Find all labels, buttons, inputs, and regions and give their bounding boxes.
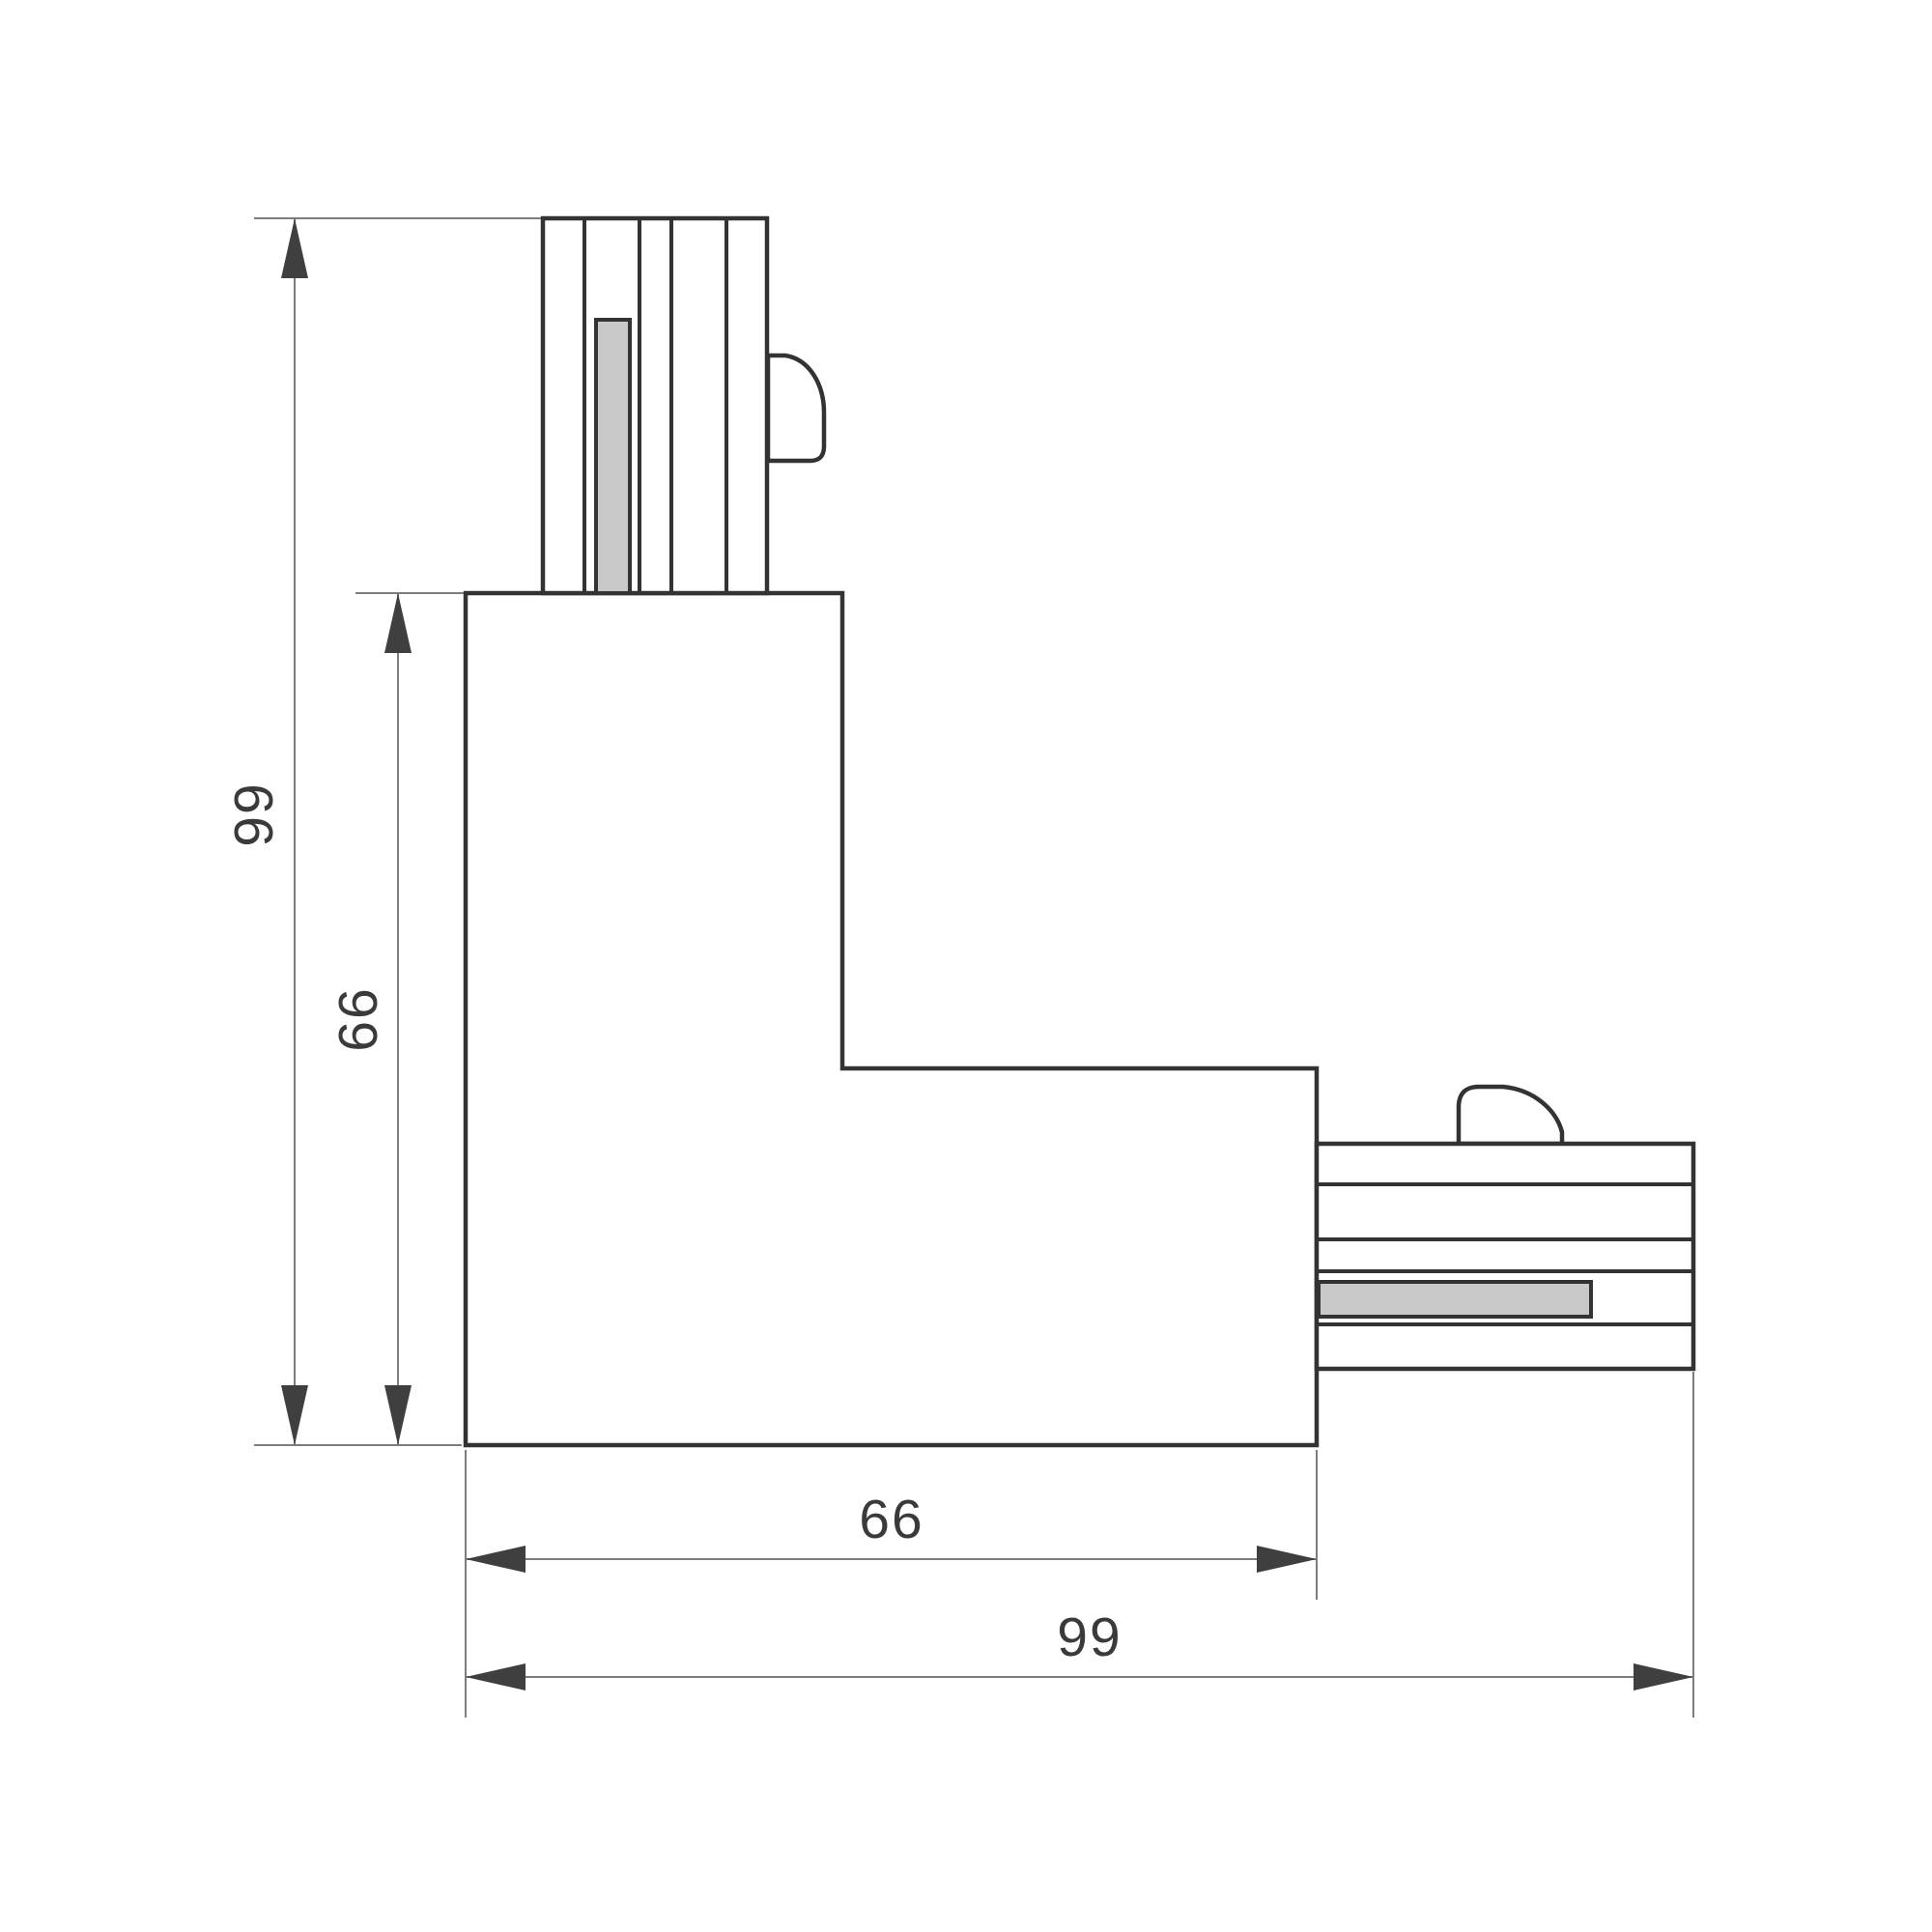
- arrowhead-right-icon: [1634, 1663, 1693, 1690]
- arrowhead-up-icon: [281, 218, 308, 278]
- arrowhead-left-icon: [466, 1663, 526, 1690]
- track-connector-drawing: 99 66 66 99: [0, 0, 1932, 1932]
- top-track-adapter: [543, 218, 824, 593]
- side-adapter-outline: [1317, 1144, 1693, 1369]
- dim-label-inner-width: 66: [859, 1489, 923, 1550]
- dimension-drawing-canvas: 99 66 66 99: [0, 0, 1932, 1932]
- dim-overall-width: 99: [466, 1606, 1693, 1690]
- arrowhead-up-icon: [384, 593, 412, 653]
- body-outline: [466, 593, 1317, 1445]
- arrowhead-down-icon: [384, 1385, 412, 1445]
- l-connector-body: [466, 593, 1317, 1445]
- dim-label-overall-width: 99: [1057, 1606, 1122, 1668]
- dim-overall-height: 99: [223, 218, 308, 1445]
- top-adapter-outline: [543, 218, 767, 593]
- dim-label-inner-height: 66: [327, 986, 389, 1051]
- arrowhead-down-icon: [281, 1385, 308, 1445]
- top-contact-strip: [596, 320, 630, 593]
- arrowhead-left-icon: [466, 1546, 526, 1573]
- side-latch-tab: [1459, 1087, 1562, 1144]
- side-track-adapter: [1317, 1087, 1693, 1369]
- dim-label-overall-height: 99: [223, 781, 285, 846]
- top-latch-tab: [768, 355, 824, 461]
- dim-inner-width: 66: [466, 1489, 1317, 1573]
- arrowhead-right-icon: [1257, 1546, 1317, 1573]
- dim-inner-height: 66: [327, 593, 412, 1445]
- side-contact-strip: [1319, 1282, 1591, 1317]
